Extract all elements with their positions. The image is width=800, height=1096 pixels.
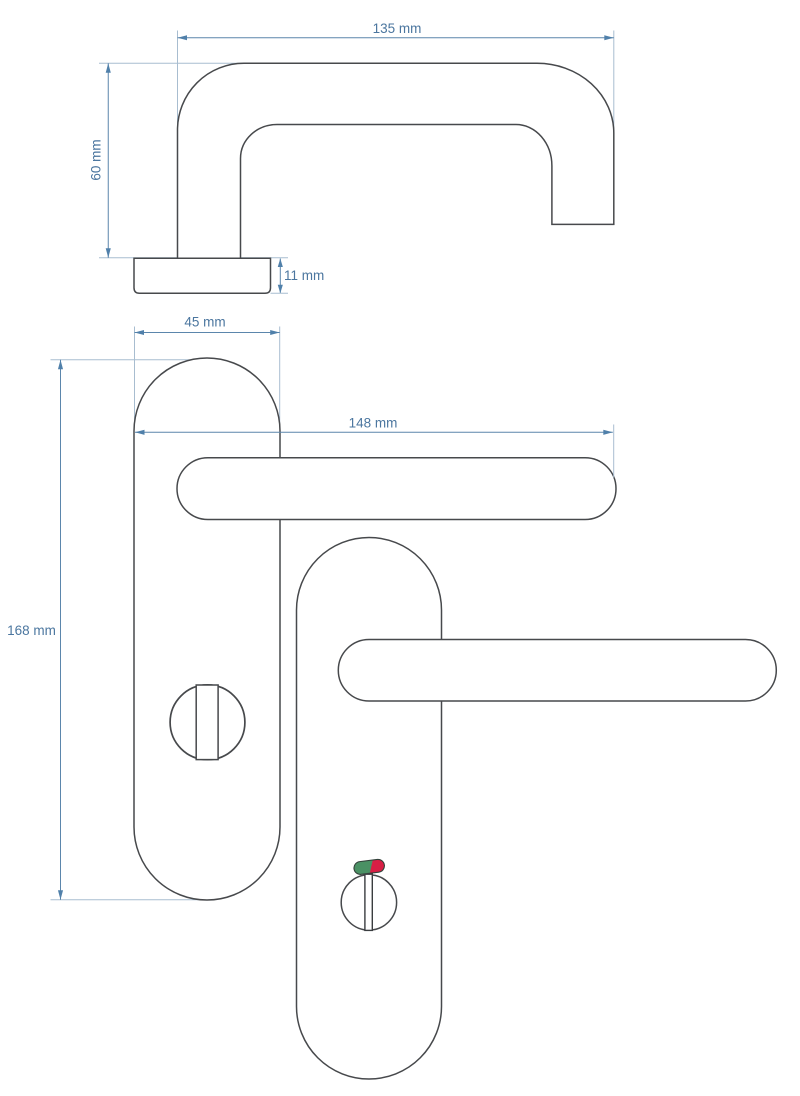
svg-text:45 mm: 45 mm bbox=[184, 315, 225, 330]
svg-text:168 mm: 168 mm bbox=[7, 623, 56, 638]
svg-text:60 mm: 60 mm bbox=[89, 139, 104, 180]
svg-text:148 mm: 148 mm bbox=[349, 416, 398, 431]
svg-text:11 mm: 11 mm bbox=[284, 268, 324, 283]
svg-text:135 mm: 135 mm bbox=[373, 21, 422, 36]
